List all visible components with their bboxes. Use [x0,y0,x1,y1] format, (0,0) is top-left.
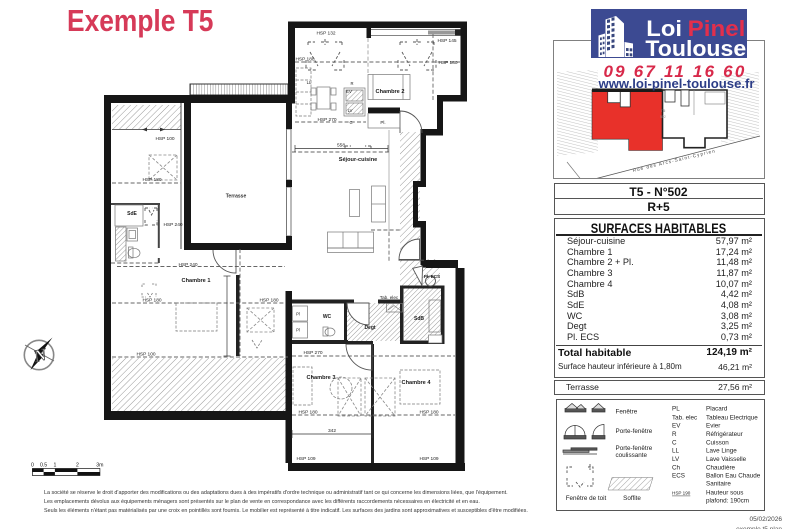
svg-text:Tab. elec: Tab. elec [672,414,697,421]
svg-text:LV: LV [672,456,680,463]
svg-text:Evier: Evier [706,423,720,430]
svg-text:HSP 180: HSP 180 [419,410,438,416]
svg-text:HSP 180: HSP 180 [142,177,161,183]
svg-text:Porte-fenêtre: Porte-fenêtre [616,445,653,452]
svg-text:HSP 180: HSP 180 [259,298,278,304]
svg-text:0.5: 0.5 [40,463,47,469]
svg-text:Porte-fenêtre: Porte-fenêtre [616,428,653,435]
svg-text:1: 1 [53,463,56,469]
svg-text:HSP 109: HSP 109 [296,456,315,462]
svg-text:HSP 240: HSP 240 [178,262,197,268]
svg-text:Pl: Pl [296,328,300,333]
svg-text:Ballon Eau Chaude: Ballon Eau Chaude [706,472,761,479]
svg-text:R: R [672,431,677,438]
svg-text:WC: WC [323,314,332,320]
svg-text:ECS: ECS [672,472,685,479]
svg-text:Ch: Ch [672,464,681,471]
svg-text:PL: PL [672,406,680,413]
svg-text:HSP 270: HSP 270 [303,350,322,356]
svg-text:Degt: Degt [364,325,375,331]
svg-text:HSP 100: HSP 100 [136,352,155,358]
svg-text:LL: LL [307,80,312,85]
svg-text:Réfrigérateur: Réfrigérateur [706,431,743,438]
svg-text:Pl.: Pl. [380,120,385,125]
svg-text:HSP 180: HSP 180 [142,298,161,304]
svg-text:HSP 100: HSP 100 [155,136,174,142]
svg-text:HSP 180: HSP 180 [298,410,317,416]
svg-text:Chambre 4: Chambre 4 [402,380,432,386]
svg-text:R: R [350,81,353,86]
svg-text:Placard: Placard [706,406,728,413]
svg-text:HSP 132: HSP 132 [316,31,335,37]
svg-text:HSP 270: HSP 270 [317,117,336,123]
svg-text:0: 0 [31,463,34,469]
svg-text:Pl: Pl [296,312,300,317]
svg-text:Chambre 1: Chambre 1 [182,278,211,284]
svg-text:Pl. ECS: Pl. ECS [424,274,440,279]
svg-text:342: 342 [328,428,336,434]
svg-text:C: C [672,439,677,446]
svg-text:Chambre 2: Chambre 2 [376,89,405,95]
svg-text:Rue des Arcs-Saint-Cyprien: Rue des Arcs-Saint-Cyprien [632,148,716,173]
svg-text:Lave Vaisselle: Lave Vaisselle [706,456,747,463]
svg-text:SdB: SdB [414,316,424,322]
svg-text:Tab. elec: Tab. elec [380,295,399,300]
svg-text:HSP 180: HSP 180 [295,57,314,63]
svg-text:T5: T5 [661,108,666,113]
svg-text:Lave Linge: Lave Linge [706,448,737,455]
svg-text:Chambre 3: Chambre 3 [307,375,336,381]
svg-text:Séjour-cuisine: Séjour-cuisine [339,157,378,163]
svg-text:Tableau Electrique: Tableau Electrique [706,414,758,421]
svg-text:SdE: SdE [127,211,137,217]
svg-text:Terrasse: Terrasse [226,194,247,200]
svg-text:Cuisson: Cuisson [706,439,729,446]
svg-text:LL: LL [672,448,680,455]
svg-text:Fenêtre: Fenêtre [616,409,638,416]
svg-text:N: N [31,344,49,366]
svg-text:2: 2 [76,463,79,469]
svg-text:Sanitaire: Sanitaire [706,481,731,488]
svg-text:HSP 109: HSP 109 [419,456,438,462]
svg-text:EV: EV [346,89,352,94]
svg-text:502: 502 [660,115,666,119]
svg-text:Chaudière: Chaudière [706,464,736,471]
svg-text:558: 558 [337,143,345,149]
svg-text:HSP 145: HSP 145 [437,38,456,44]
svg-text:coulissante: coulissante [616,452,648,459]
svg-text:HSP 240: HSP 240 [163,222,182,228]
svg-text:HSP 180: HSP 180 [438,60,457,66]
svg-text:Toulouse: Toulouse [645,36,746,58]
svg-text:EV: EV [672,423,681,430]
svg-text:LV: LV [348,108,353,113]
svg-text:3m: 3m [96,463,103,469]
svg-text:C: C [349,120,352,125]
